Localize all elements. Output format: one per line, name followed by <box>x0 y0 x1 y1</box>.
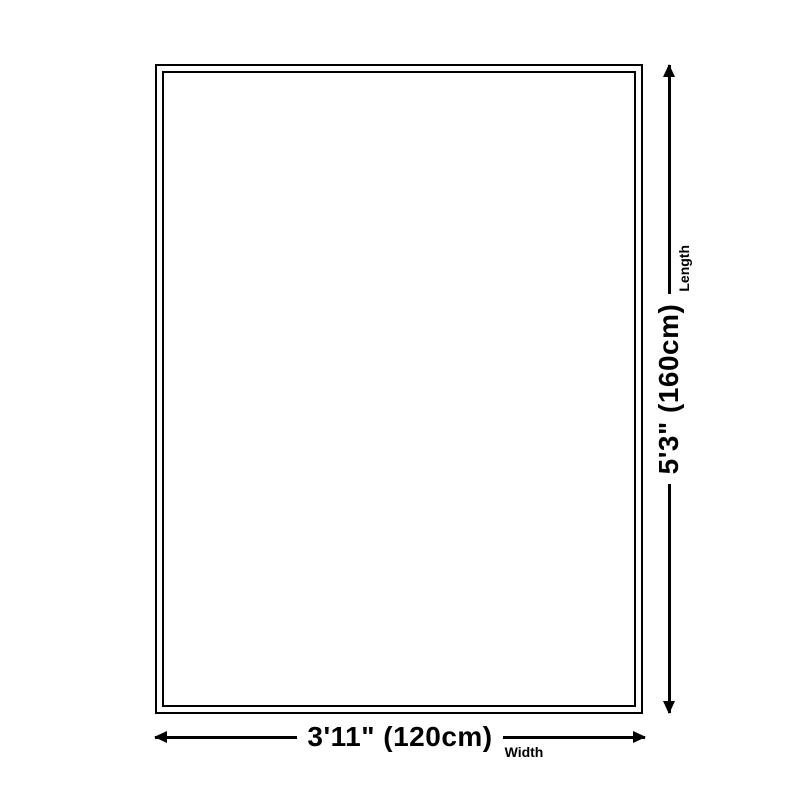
arrow-left-icon <box>154 731 167 743</box>
arrow-down-icon <box>663 701 675 714</box>
rug-outline <box>155 64 643 714</box>
width-dimension: 3'11" (120cm) Width <box>155 715 645 759</box>
length-dimension: 5'3" (160cm) Length <box>647 65 691 713</box>
rug-inner-border <box>162 71 636 707</box>
width-dim-line-right: Width <box>503 736 645 739</box>
length-value: 5'3" (160cm) <box>655 304 683 475</box>
arrow-right-icon <box>633 731 646 743</box>
arrow-up-icon <box>663 64 675 77</box>
width-dim-line-left <box>155 736 297 739</box>
size-diagram: 3'11" (120cm) Width 5'3" (160cm) Length <box>0 0 800 800</box>
width-label: Width <box>505 745 544 759</box>
length-dim-line-bottom <box>668 484 671 713</box>
length-label: Length <box>677 245 691 292</box>
length-dim-line-top: Length <box>668 65 671 294</box>
width-value: 3'11" (120cm) <box>307 723 492 751</box>
